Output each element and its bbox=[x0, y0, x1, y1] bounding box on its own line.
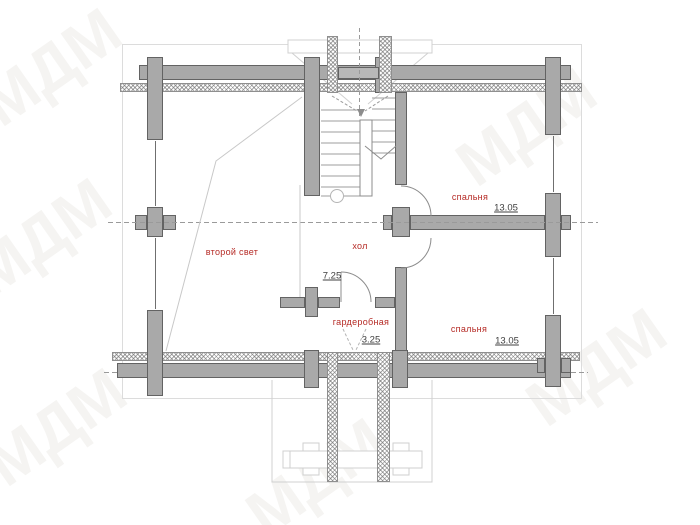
stair-newel-post bbox=[331, 190, 344, 203]
room-area-bedroom-bottom: 13.05 bbox=[495, 336, 519, 347]
door-arc-bedroom-top bbox=[401, 186, 431, 216]
room-label-wardrobe: гардеробная bbox=[333, 317, 389, 327]
room-area-wardrobe: 3.25 bbox=[362, 335, 381, 346]
room-label-bedroom-top: спальня bbox=[452, 192, 488, 202]
room-label-second-light: второй свет bbox=[206, 247, 258, 257]
second-light-edge bbox=[166, 97, 302, 351]
overlay-linework bbox=[0, 0, 700, 525]
room-area-hall: 7.25 bbox=[323, 271, 342, 282]
room-area-bedroom-top: 13.05 bbox=[494, 203, 518, 214]
door-arc-bedroom-bottom bbox=[401, 238, 431, 268]
floor-plan: МДМ МДМ МДМ МДМ МДМ МДМ bbox=[0, 0, 700, 525]
room-label-hall: хол bbox=[352, 241, 367, 251]
stair-direction-arrow bbox=[357, 109, 365, 117]
room-label-bedroom-bottom: спальня bbox=[451, 324, 487, 334]
staircase bbox=[321, 96, 396, 203]
door-arc-wardrobe bbox=[341, 272, 371, 302]
